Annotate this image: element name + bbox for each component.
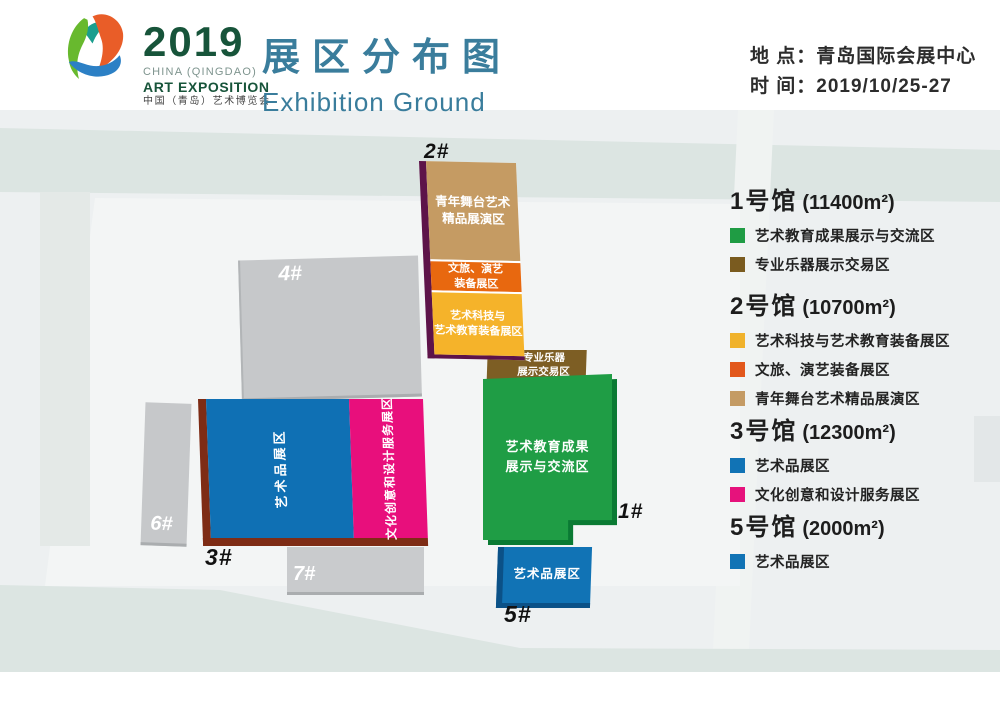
zone-artworks-label: 艺术品展区 — [269, 428, 291, 508]
swatch-tan — [730, 391, 745, 406]
legend-item: 青年舞台艺术精品展演区 — [730, 388, 998, 409]
building-6-label: 6# — [150, 512, 173, 536]
logo-text: 2019 CHINA (QINGDAO) ART EXPOSITION 中国（青… — [143, 21, 271, 107]
page-title: 展区分布图 — [262, 26, 512, 81]
swatch-orange — [730, 362, 745, 377]
building-7-label: 7# — [293, 563, 315, 586]
page-subtitle: Exhibition Ground — [262, 87, 512, 118]
hall-name: 1号馆 — [730, 188, 797, 215]
zone-youth-stage-art: 青年舞台艺术 精品展演区 — [426, 161, 520, 261]
legend-item: 艺术品展区 — [730, 551, 998, 572]
building-2-label: 2# — [424, 140, 449, 164]
zone-cultural-creative-design: 文化创意和设计服务展区 — [349, 399, 428, 538]
legend-item: 艺术科技与艺术教育装备展区 — [730, 330, 998, 351]
logo-subtitle-cn: 中国（青岛）艺术博览会 — [143, 97, 271, 107]
building-5: 艺术品展区 — [496, 547, 592, 608]
legend-hall-3: 3号馆(12300m²) 艺术品展区 文化创意和设计服务展区 — [730, 411, 998, 513]
building-1: 艺术教育成果 展示与交流区 — [483, 374, 617, 545]
expo-logo-icon — [58, 13, 144, 101]
swatch-blue — [730, 458, 745, 473]
building-3: 艺术品展区 文化创意和设计服务展区 — [198, 399, 428, 546]
building-3-label: 3# — [205, 544, 233, 571]
hall-name: 5号馆 — [730, 514, 797, 541]
building-5-label: 5# — [504, 601, 532, 628]
logo-subtitle-en1: CHINA (QINGDAO) — [143, 67, 271, 78]
hall-name: 2号馆 — [730, 293, 797, 320]
legend-item: 艺术品展区 — [730, 455, 998, 476]
zone-culture-tourism-equipment: 文旅、演艺 装备展区 — [430, 261, 521, 292]
legend-hall-5: 5号馆(2000m²) 艺术品展区 — [730, 507, 998, 580]
swatch-brown — [730, 257, 745, 272]
building-6: 6# — [141, 402, 192, 547]
exhibition-ground-page: 2019 CHINA (QINGDAO) ART EXPOSITION 中国（青… — [0, 0, 1000, 701]
swatch-pink — [730, 487, 745, 502]
hall-area: (11400m²) — [802, 192, 894, 214]
building-2: 青年舞台艺术 精品展演区 文旅、演艺 装备展区 艺术科技与 艺术教育装备展区 — [419, 161, 525, 360]
building-1-label: 1# — [618, 500, 643, 524]
building-4-label: 4# — [278, 262, 302, 287]
header: 2019 CHINA (QINGDAO) ART EXPOSITION 中国（青… — [0, 0, 1000, 110]
building-4: 4# — [238, 256, 422, 402]
hall-area: (10700m²) — [802, 297, 895, 319]
zone-cultural-creative-design-label: 文化创意和设计服务展区 — [377, 397, 399, 540]
legend-item: 专业乐器展示交易区 — [730, 254, 998, 275]
legend-hall-5-title: 5号馆(2000m²) — [730, 507, 998, 542]
legend-hall-3-title: 3号馆(12300m²) — [730, 411, 998, 446]
hall-area: (12300m²) — [802, 422, 895, 444]
legend-hall-2: 2号馆(10700m²) 艺术科技与艺术教育装备展区 文旅、演艺装备展区 青年舞… — [730, 286, 998, 417]
zone-art-education-achievements: 艺术教育成果 展示与交流区 — [483, 374, 612, 540]
page-title-block: 展区分布图 Exhibition Ground — [262, 26, 512, 118]
building-7: 7# — [287, 547, 424, 595]
logo-subtitle-en2: ART EXPOSITION — [143, 80, 271, 94]
swatch-yellow — [730, 333, 745, 348]
zone-art-tech-education-equipment: 艺术科技与 艺术教育装备展区 — [432, 292, 525, 356]
legend-hall-2-title: 2号馆(10700m²) — [730, 286, 998, 321]
zone-artworks: 艺术品展区 — [206, 399, 354, 538]
event-info: 地 点：青岛国际会展中心 时 间：2019/10/25-27 — [750, 42, 976, 102]
legend-item: 艺术教育成果展示与交流区 — [730, 225, 998, 246]
swatch-blue — [730, 554, 745, 569]
logo-year: 2019 — [143, 21, 271, 63]
legend-hall-1: 1号馆(11400m²) 艺术教育成果展示与交流区 专业乐器展示交易区 — [730, 181, 998, 283]
legend-hall-1-title: 1号馆(11400m²) — [730, 181, 998, 216]
legend-item: 文化创意和设计服务展区 — [730, 484, 998, 505]
event-time: 时 间：2019/10/25-27 — [750, 72, 976, 102]
legend-item: 文旅、演艺装备展区 — [730, 359, 998, 380]
event-location: 地 点：青岛国际会展中心 — [750, 42, 976, 72]
swatch-green — [730, 228, 745, 243]
hall-name: 3号馆 — [730, 418, 797, 445]
hall-area: (2000m²) — [802, 518, 884, 540]
